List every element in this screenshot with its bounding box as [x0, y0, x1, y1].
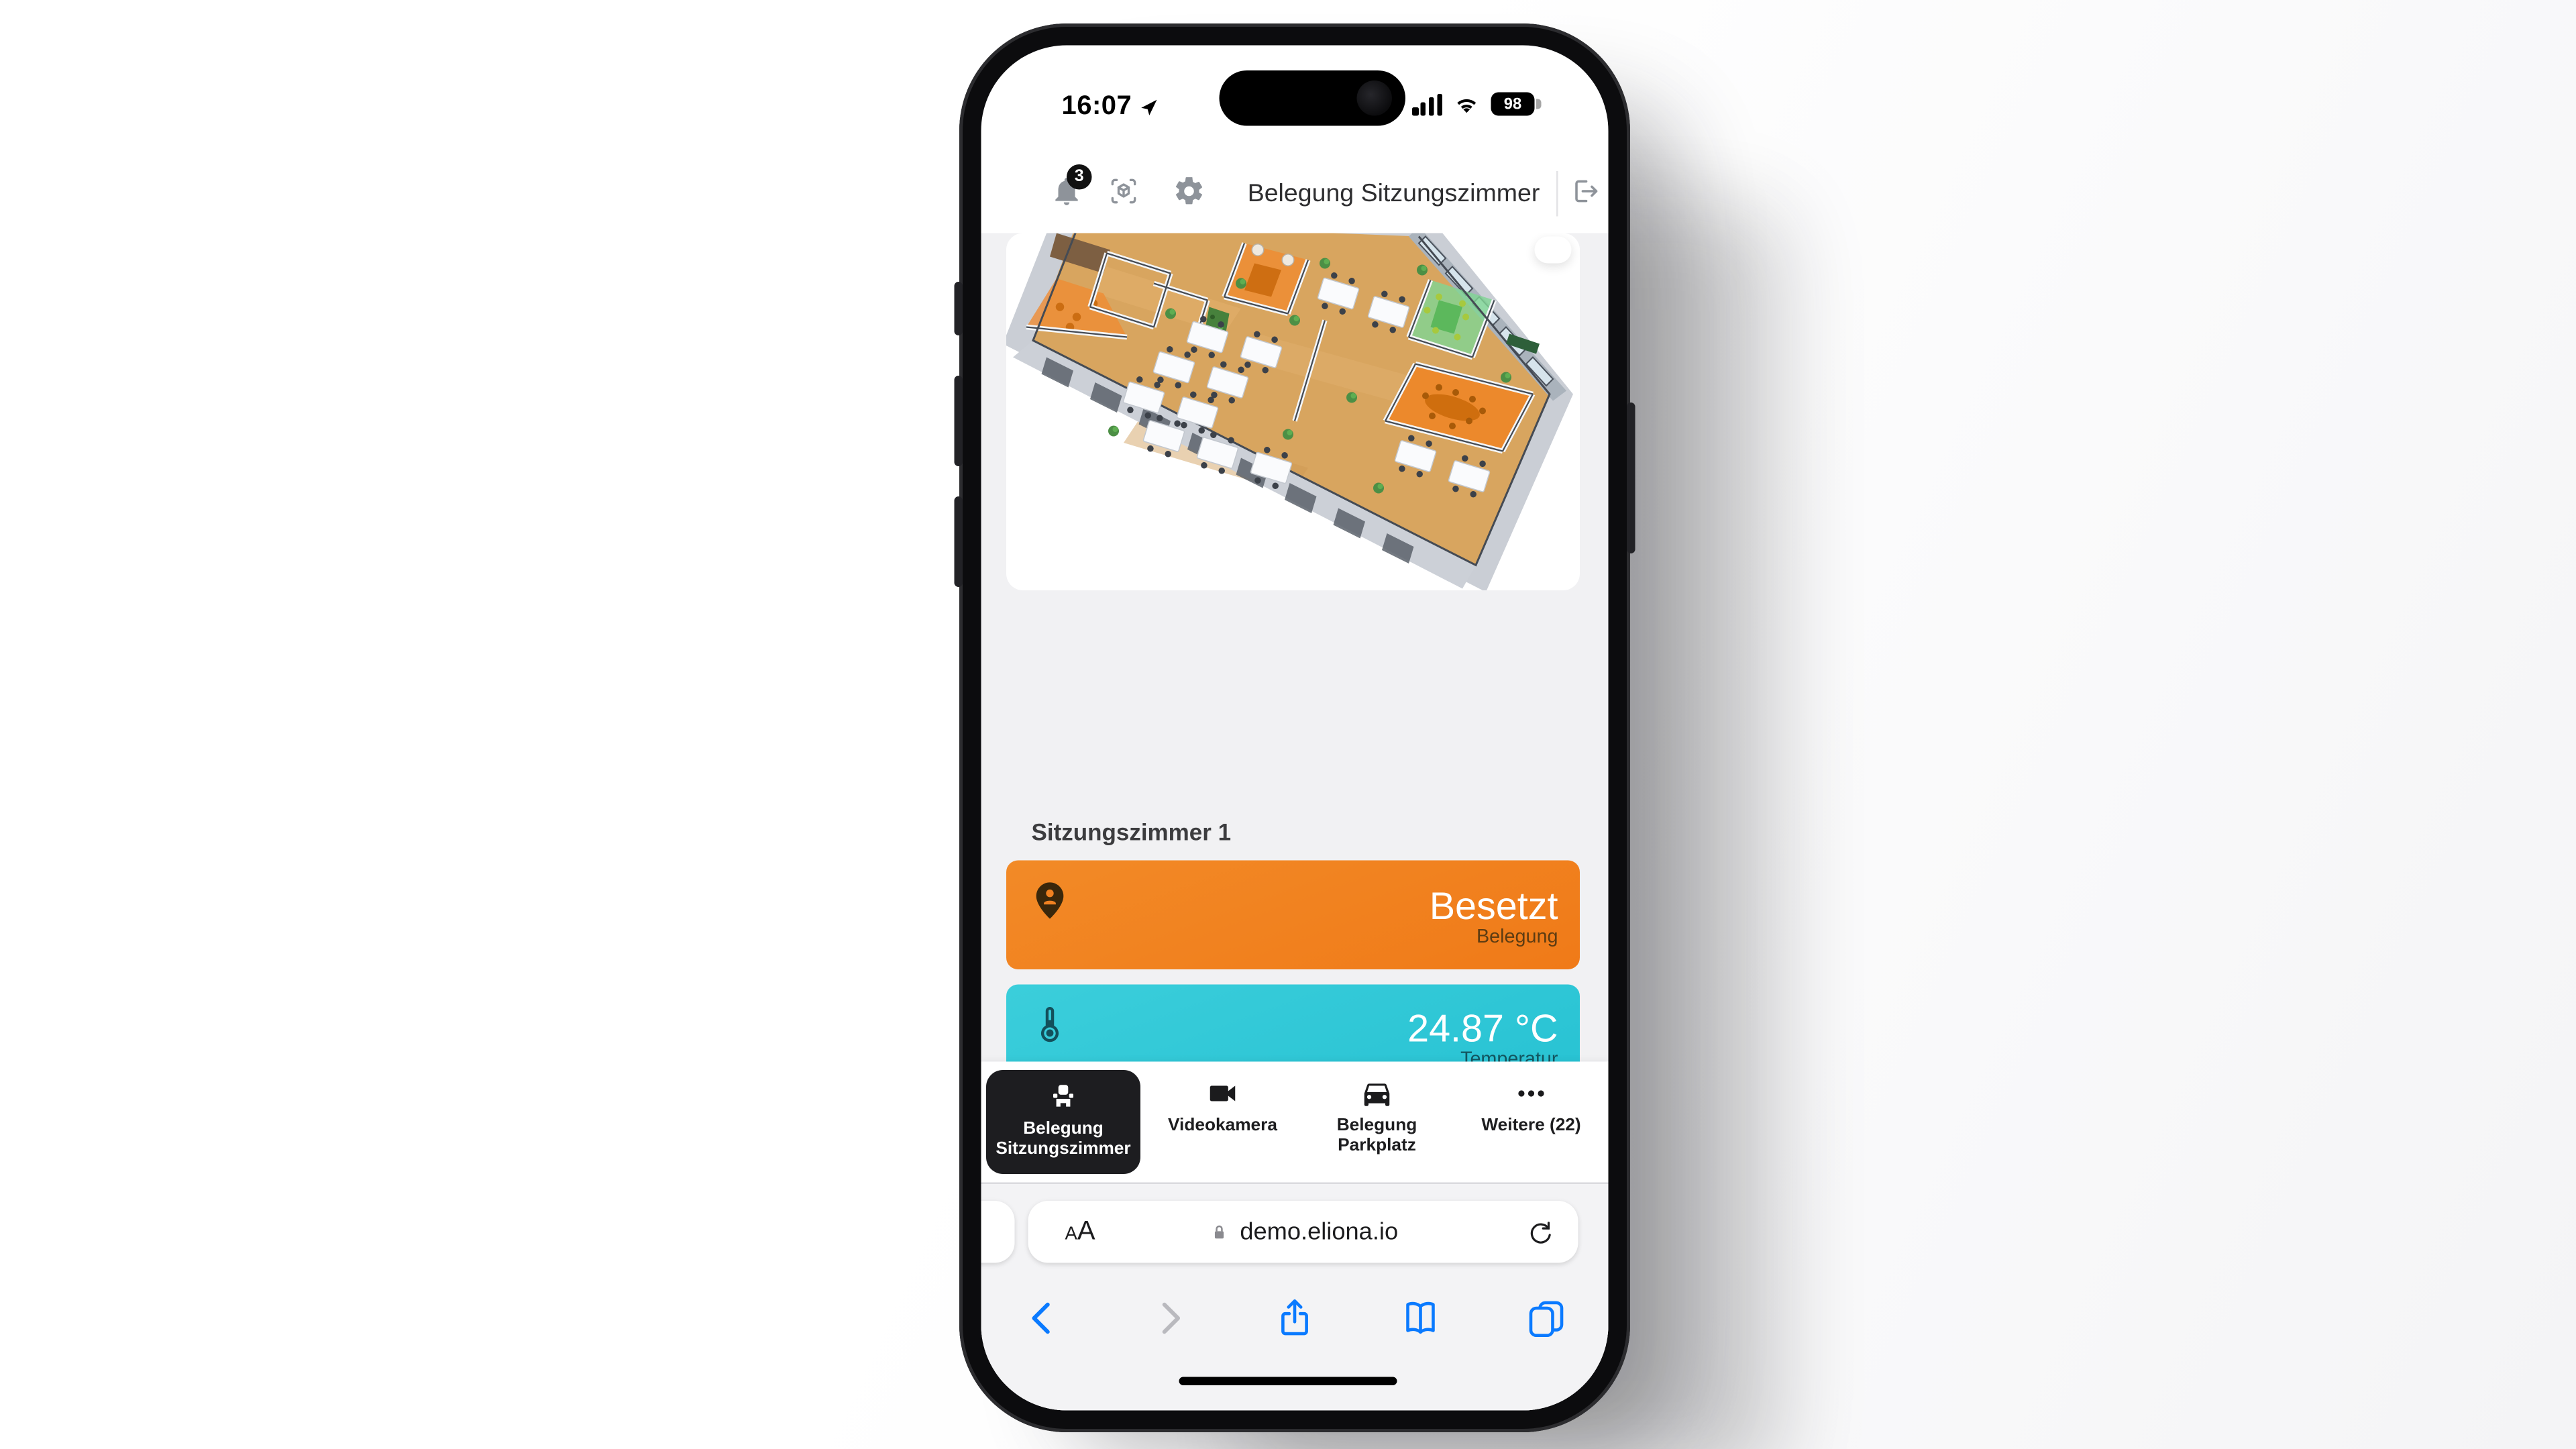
location-pin-person-icon — [1028, 879, 1072, 922]
floor-plan-3d[interactable] — [1006, 233, 1580, 591]
url-text: demo.eliona.io — [1240, 1218, 1398, 1245]
phone-screen: 16:07 98 — [981, 46, 1609, 1411]
bookmarks-icon[interactable] — [1399, 1297, 1442, 1340]
home-indicator[interactable] — [1179, 1377, 1397, 1386]
logout-icon[interactable] — [1568, 174, 1602, 208]
app-header: 3 Belegung Sitzungszimmer — [981, 154, 1609, 233]
floor-plan-card[interactable] — [1006, 233, 1580, 591]
settings-gear-icon[interactable] — [1173, 174, 1206, 208]
scroll-indicator — [1535, 237, 1572, 264]
safari-chrome: AA demo.eliona.io — [981, 1183, 1609, 1411]
status-time: 16:07 — [1062, 93, 1159, 123]
previous-tab-peek[interactable] — [981, 1201, 1015, 1263]
meeting-room-seat-icon — [1046, 1080, 1080, 1114]
forward-icon[interactable] — [1147, 1297, 1191, 1340]
text-size-button[interactable]: AA — [1065, 1217, 1095, 1247]
volume-up-button — [955, 376, 963, 466]
car-icon — [1360, 1077, 1394, 1110]
desktop-background: 16:07 98 — [0, 0, 2576, 1449]
occupancy-card[interactable]: Besetzt Belegung — [1006, 861, 1580, 970]
thermometer-icon — [1028, 1003, 1072, 1046]
back-icon[interactable] — [1022, 1297, 1065, 1340]
address-bar[interactable]: AA demo.eliona.io — [1028, 1201, 1578, 1263]
ar-cube-scan-icon[interactable] — [1107, 174, 1140, 208]
header-divider — [1556, 171, 1558, 217]
tab-weitere[interactable]: Weitere (22) — [1454, 1062, 1609, 1183]
power-button — [1627, 402, 1635, 553]
share-icon[interactable] — [1273, 1297, 1317, 1340]
safari-toolbar — [981, 1285, 1609, 1352]
page-title: Belegung Sitzungszimmer — [1250, 154, 1538, 233]
more-ellipsis-icon — [1515, 1077, 1548, 1110]
tab-belegung-sitzungszimmer[interactable]: Belegung Sitzungszimmer — [986, 1070, 1140, 1174]
notification-badge: 3 — [1067, 164, 1092, 190]
reload-icon[interactable] — [1525, 1217, 1555, 1247]
video-camera-icon — [1206, 1077, 1240, 1110]
room-section-title: Sitzungszimmer 1 — [1032, 818, 1232, 845]
temperature-value: 24.87 °C — [1407, 1006, 1558, 1050]
lock-icon — [1208, 1218, 1232, 1245]
app-tab-bar: Belegung Sitzungszimmer Videokamera Bele… — [981, 1062, 1609, 1183]
tabs-icon[interactable] — [1525, 1297, 1568, 1340]
tab-belegung-parkplatz[interactable]: Belegung Parkplatz — [1300, 1062, 1454, 1183]
location-arrow-icon — [1138, 97, 1159, 117]
wifi-icon — [1452, 93, 1481, 115]
dynamic-island — [1220, 70, 1406, 126]
status-bar: 16:07 98 — [981, 46, 1609, 153]
iphone-frame: 16:07 98 — [959, 23, 1630, 1432]
tab-videokamera[interactable]: Videokamera — [1146, 1062, 1300, 1183]
action-button — [955, 282, 963, 335]
cellular-signal-icon — [1413, 93, 1442, 115]
occupancy-value: Besetzt — [1430, 883, 1558, 926]
occupancy-label: Belegung — [1477, 926, 1558, 947]
front-camera — [1357, 80, 1393, 116]
battery-icon: 98 — [1491, 93, 1535, 116]
volume-down-button — [955, 496, 963, 587]
